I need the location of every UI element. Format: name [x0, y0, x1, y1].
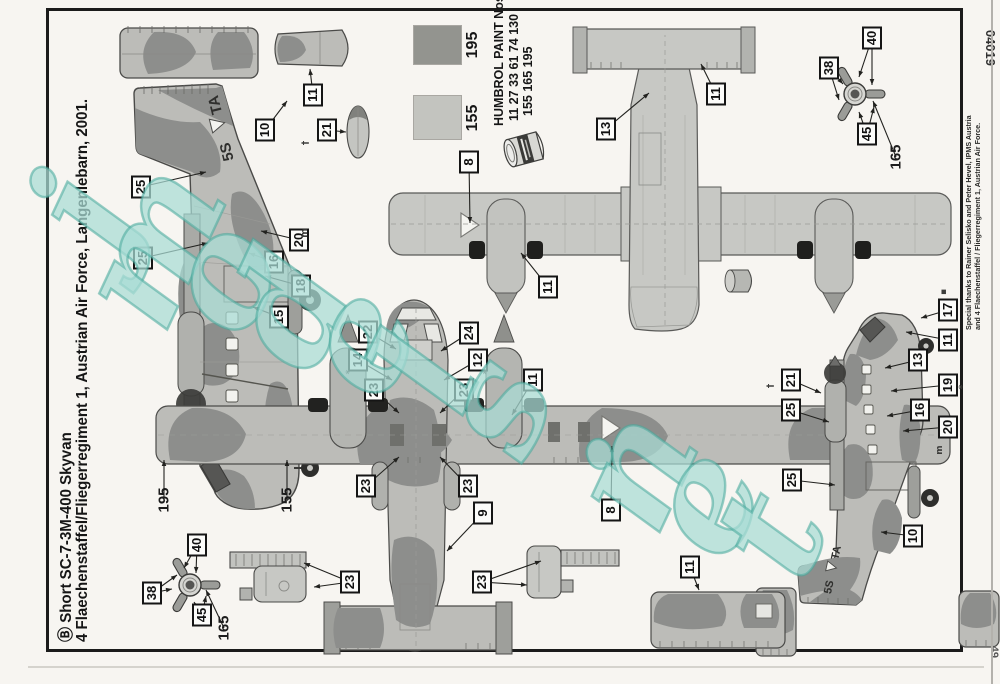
callout-38-propeller-front-lower: 38	[142, 582, 162, 605]
callout-13-starboard-side-view: 13	[908, 349, 928, 372]
callout-layer: 1025251516182021111311811221424122323232…	[0, 0, 1000, 684]
callout-24-top-view: 24	[459, 322, 479, 345]
callout-11-underside-view: 11	[706, 83, 726, 106]
callout-11-top-view: 11	[523, 369, 543, 392]
callout-8-underside-view: 8	[459, 151, 479, 174]
callout-12-top-view: 12	[468, 349, 488, 372]
color-label-155-top-view: 155	[279, 487, 296, 512]
scanned-paint-guide-page: Ⓑ Short SC-7-3M-400 Skyvan 4 Flaechensta…	[0, 0, 1000, 684]
callout-40-propeller-front-lower: 40	[187, 534, 207, 557]
callout-45-propeller-front-lower: 45	[192, 604, 212, 627]
callout-15-port-side-view: 15	[269, 306, 289, 329]
callout-14-top-view: 14	[348, 349, 368, 372]
callout-23-sponson-details: 23	[472, 571, 492, 594]
sparkle-mark-icon: *	[345, 370, 355, 375]
callout-23-top-view: 23	[458, 475, 478, 498]
callout-23-top-view: 23	[356, 475, 376, 498]
m-mark-icon: m	[300, 228, 310, 237]
anchor-mark-icon: †	[301, 141, 311, 146]
color-label-165-propeller-front-lower: 165	[216, 615, 233, 640]
callout-23-sponson-details: 23	[340, 571, 360, 594]
callout-9-top-view: 9	[473, 502, 493, 525]
callout-21-starboard-side-view: 21	[781, 369, 801, 392]
scan-edge-right	[991, 0, 993, 684]
callout-45-propeller-front-upper: 45	[857, 123, 877, 146]
scan-edge-bottom	[28, 666, 984, 668]
square-mark-icon: ▪	[939, 289, 949, 295]
callout-11-starboard-side-view: 11	[938, 329, 958, 352]
callout-20-starboard-side-view: 20	[938, 416, 958, 439]
callout-16-port-side-view: 16	[264, 251, 284, 274]
anchor-mark-icon: †	[766, 384, 776, 389]
rotated-page: Ⓑ Short SC-7-3M-400 Skyvan 4 Flaechensta…	[0, 0, 1000, 684]
callout-21-port-side-view: 21	[317, 119, 337, 142]
callout-23-top-view: 23	[454, 379, 474, 402]
sparkle-mark-icon: *	[482, 370, 492, 375]
callout-25-port-side-view: 25	[133, 247, 153, 270]
callout-18-port-side-view: 18	[291, 275, 311, 298]
callout-11-port-side-view: 11	[303, 84, 323, 107]
color-label-195-top-view: 195	[156, 487, 173, 512]
m-mark-icon: m	[935, 445, 945, 454]
callout-38-propeller-front-upper: 38	[819, 57, 839, 80]
callout-25-starboard-side-view: 25	[782, 469, 802, 492]
callout-17-starboard-side-view: 17	[938, 299, 958, 322]
callout-8-top-view: 8	[601, 499, 621, 522]
color-label-165-propeller-front-upper: 165	[888, 144, 905, 169]
callout-11-underside-view: 11	[538, 276, 558, 299]
sparkle-mark-icon: *	[958, 385, 968, 390]
callout-40-propeller-front-upper: 40	[862, 27, 882, 50]
callout-19-starboard-side-view: 19	[938, 374, 958, 397]
callout-25-port-side-view: 25	[131, 176, 151, 199]
callout-10-port-side-view: 10	[255, 119, 275, 142]
callout-10-starboard-side-view: 10	[903, 525, 923, 548]
callout-16-starboard-side-view: 16	[910, 399, 930, 422]
callout-25-starboard-side-view: 25	[781, 399, 801, 422]
callout-13-underside-view: 13	[596, 118, 616, 141]
callout-22-top-view: 22	[358, 321, 378, 344]
callout-11-fin-piece: 11	[680, 556, 700, 579]
callout-23-top-view: 23	[364, 379, 384, 402]
